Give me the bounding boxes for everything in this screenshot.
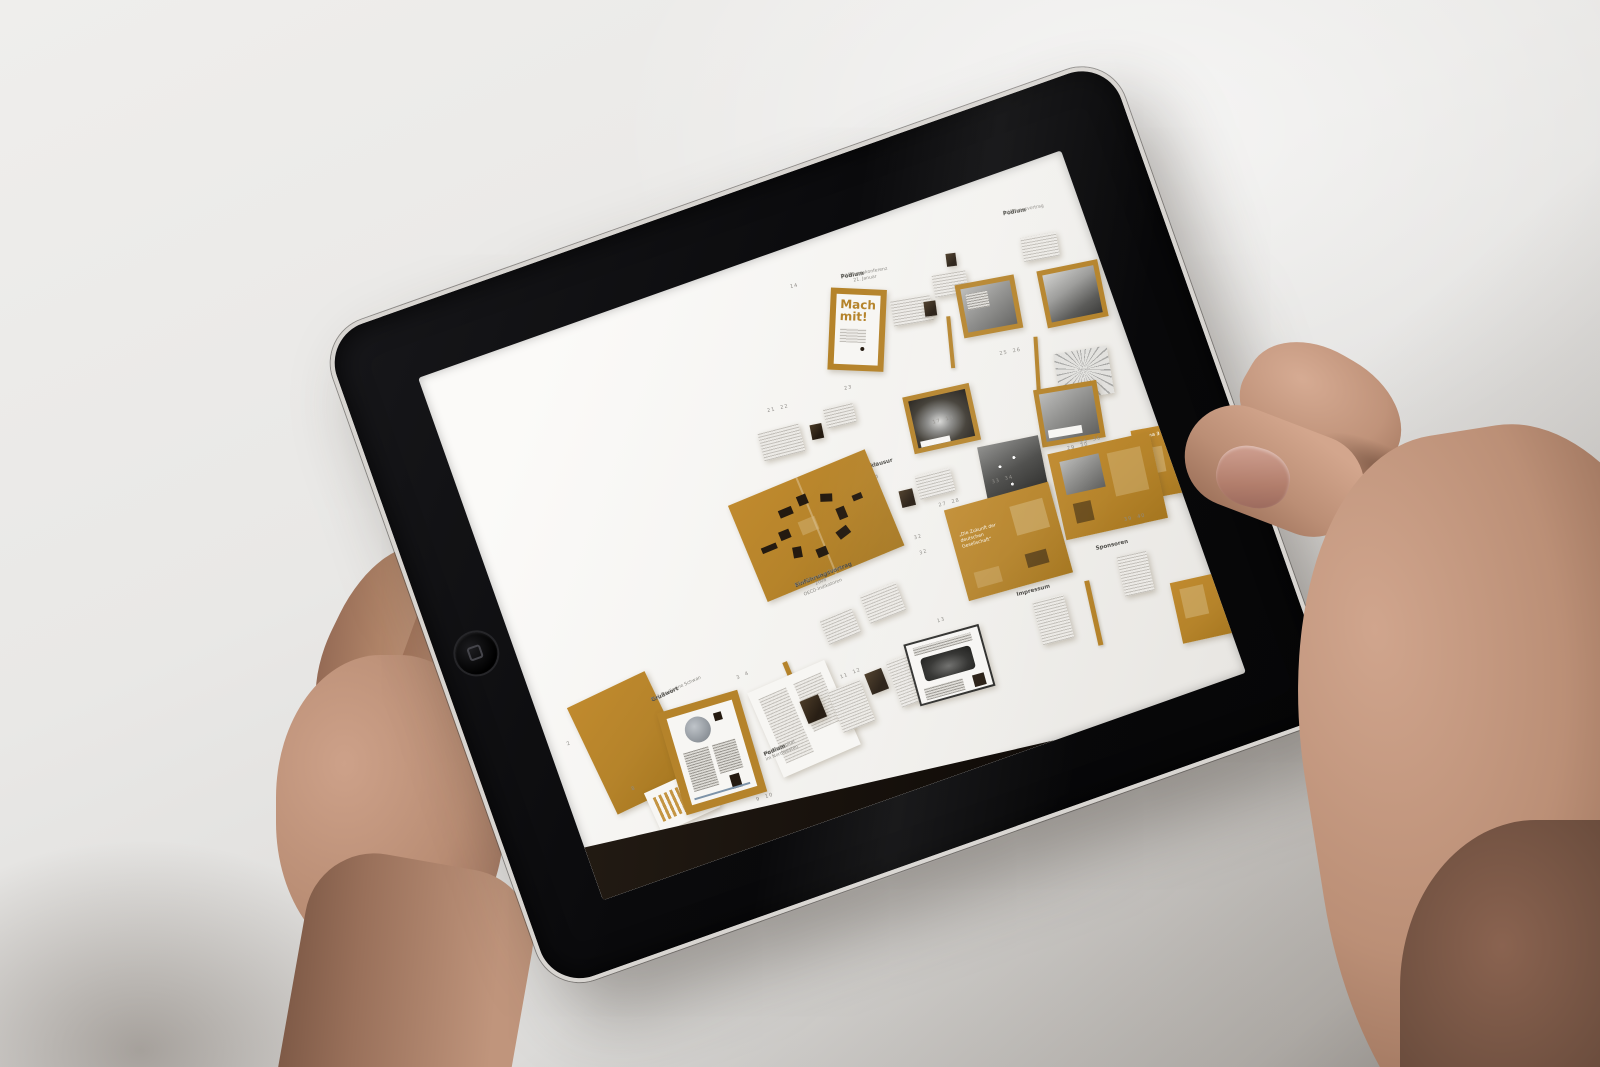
text-block: [758, 424, 806, 462]
orange-spread-clipped: [1170, 569, 1246, 643]
page-number: 3 4: [735, 670, 750, 681]
text-block: [823, 402, 857, 428]
photo-of-hands-holding-tablet: 14 Mach mit! Podium Eröffnungskonferenz …: [0, 0, 1600, 1067]
photo-thumbnail: [945, 253, 957, 267]
framed-photo-spread: [955, 274, 1024, 338]
mach-mit-title: Mach mit!: [839, 298, 880, 324]
photo-thumbnail: [923, 300, 937, 316]
text-block: [1020, 232, 1060, 262]
framed-mountain-photo-spread: [1036, 259, 1108, 328]
home-button[interactable]: [450, 627, 504, 681]
touchscreen-display[interactable]: 14 Mach mit! Podium Eröffnungskonferenz …: [418, 150, 1246, 900]
photo-thumbnail: [864, 668, 889, 695]
page-number: 14: [790, 282, 799, 290]
page-number: 13: [936, 616, 946, 624]
page-number: 2: [566, 740, 572, 747]
caption-sponsoren: Sponsoren: [1095, 533, 1154, 546]
page-number: 32: [913, 533, 923, 541]
page-number: 23: [844, 384, 853, 392]
page-number: 11 12: [839, 667, 862, 681]
text-column: [1032, 595, 1074, 646]
spine-bar: [946, 316, 955, 368]
text-block: [820, 608, 861, 645]
page-number: 21 22: [767, 403, 790, 414]
spine-bar: [1033, 337, 1040, 393]
text-block: [915, 467, 956, 499]
text-column: [1117, 551, 1155, 597]
caption-podium-lecture: Podium Eröffnungsvortrag: [1002, 198, 1077, 212]
caption-grusswort: Grußwort Prof. Dr. Gesine Schwan: [650, 667, 719, 699]
car-advert-spread: [903, 624, 995, 707]
orange-photo-spread: [1047, 432, 1168, 540]
caption-podium-opening: Podium Eröffnungskonferenz 21. Januar: [840, 262, 915, 275]
page-number: 25 26: [999, 347, 1022, 357]
home-button-square-icon: [466, 644, 484, 662]
spine-bar: [1084, 580, 1103, 646]
zukunft-orange-spread: „Die Zukunft der deutschen Gesellschaft“: [944, 482, 1073, 601]
photo-thumbnail: [898, 488, 916, 508]
text-block: [860, 582, 906, 624]
page-number: 32: [919, 548, 929, 556]
mach-mit-poster: Mach mit!: [827, 288, 887, 372]
photo-thumbnail: [809, 423, 824, 440]
